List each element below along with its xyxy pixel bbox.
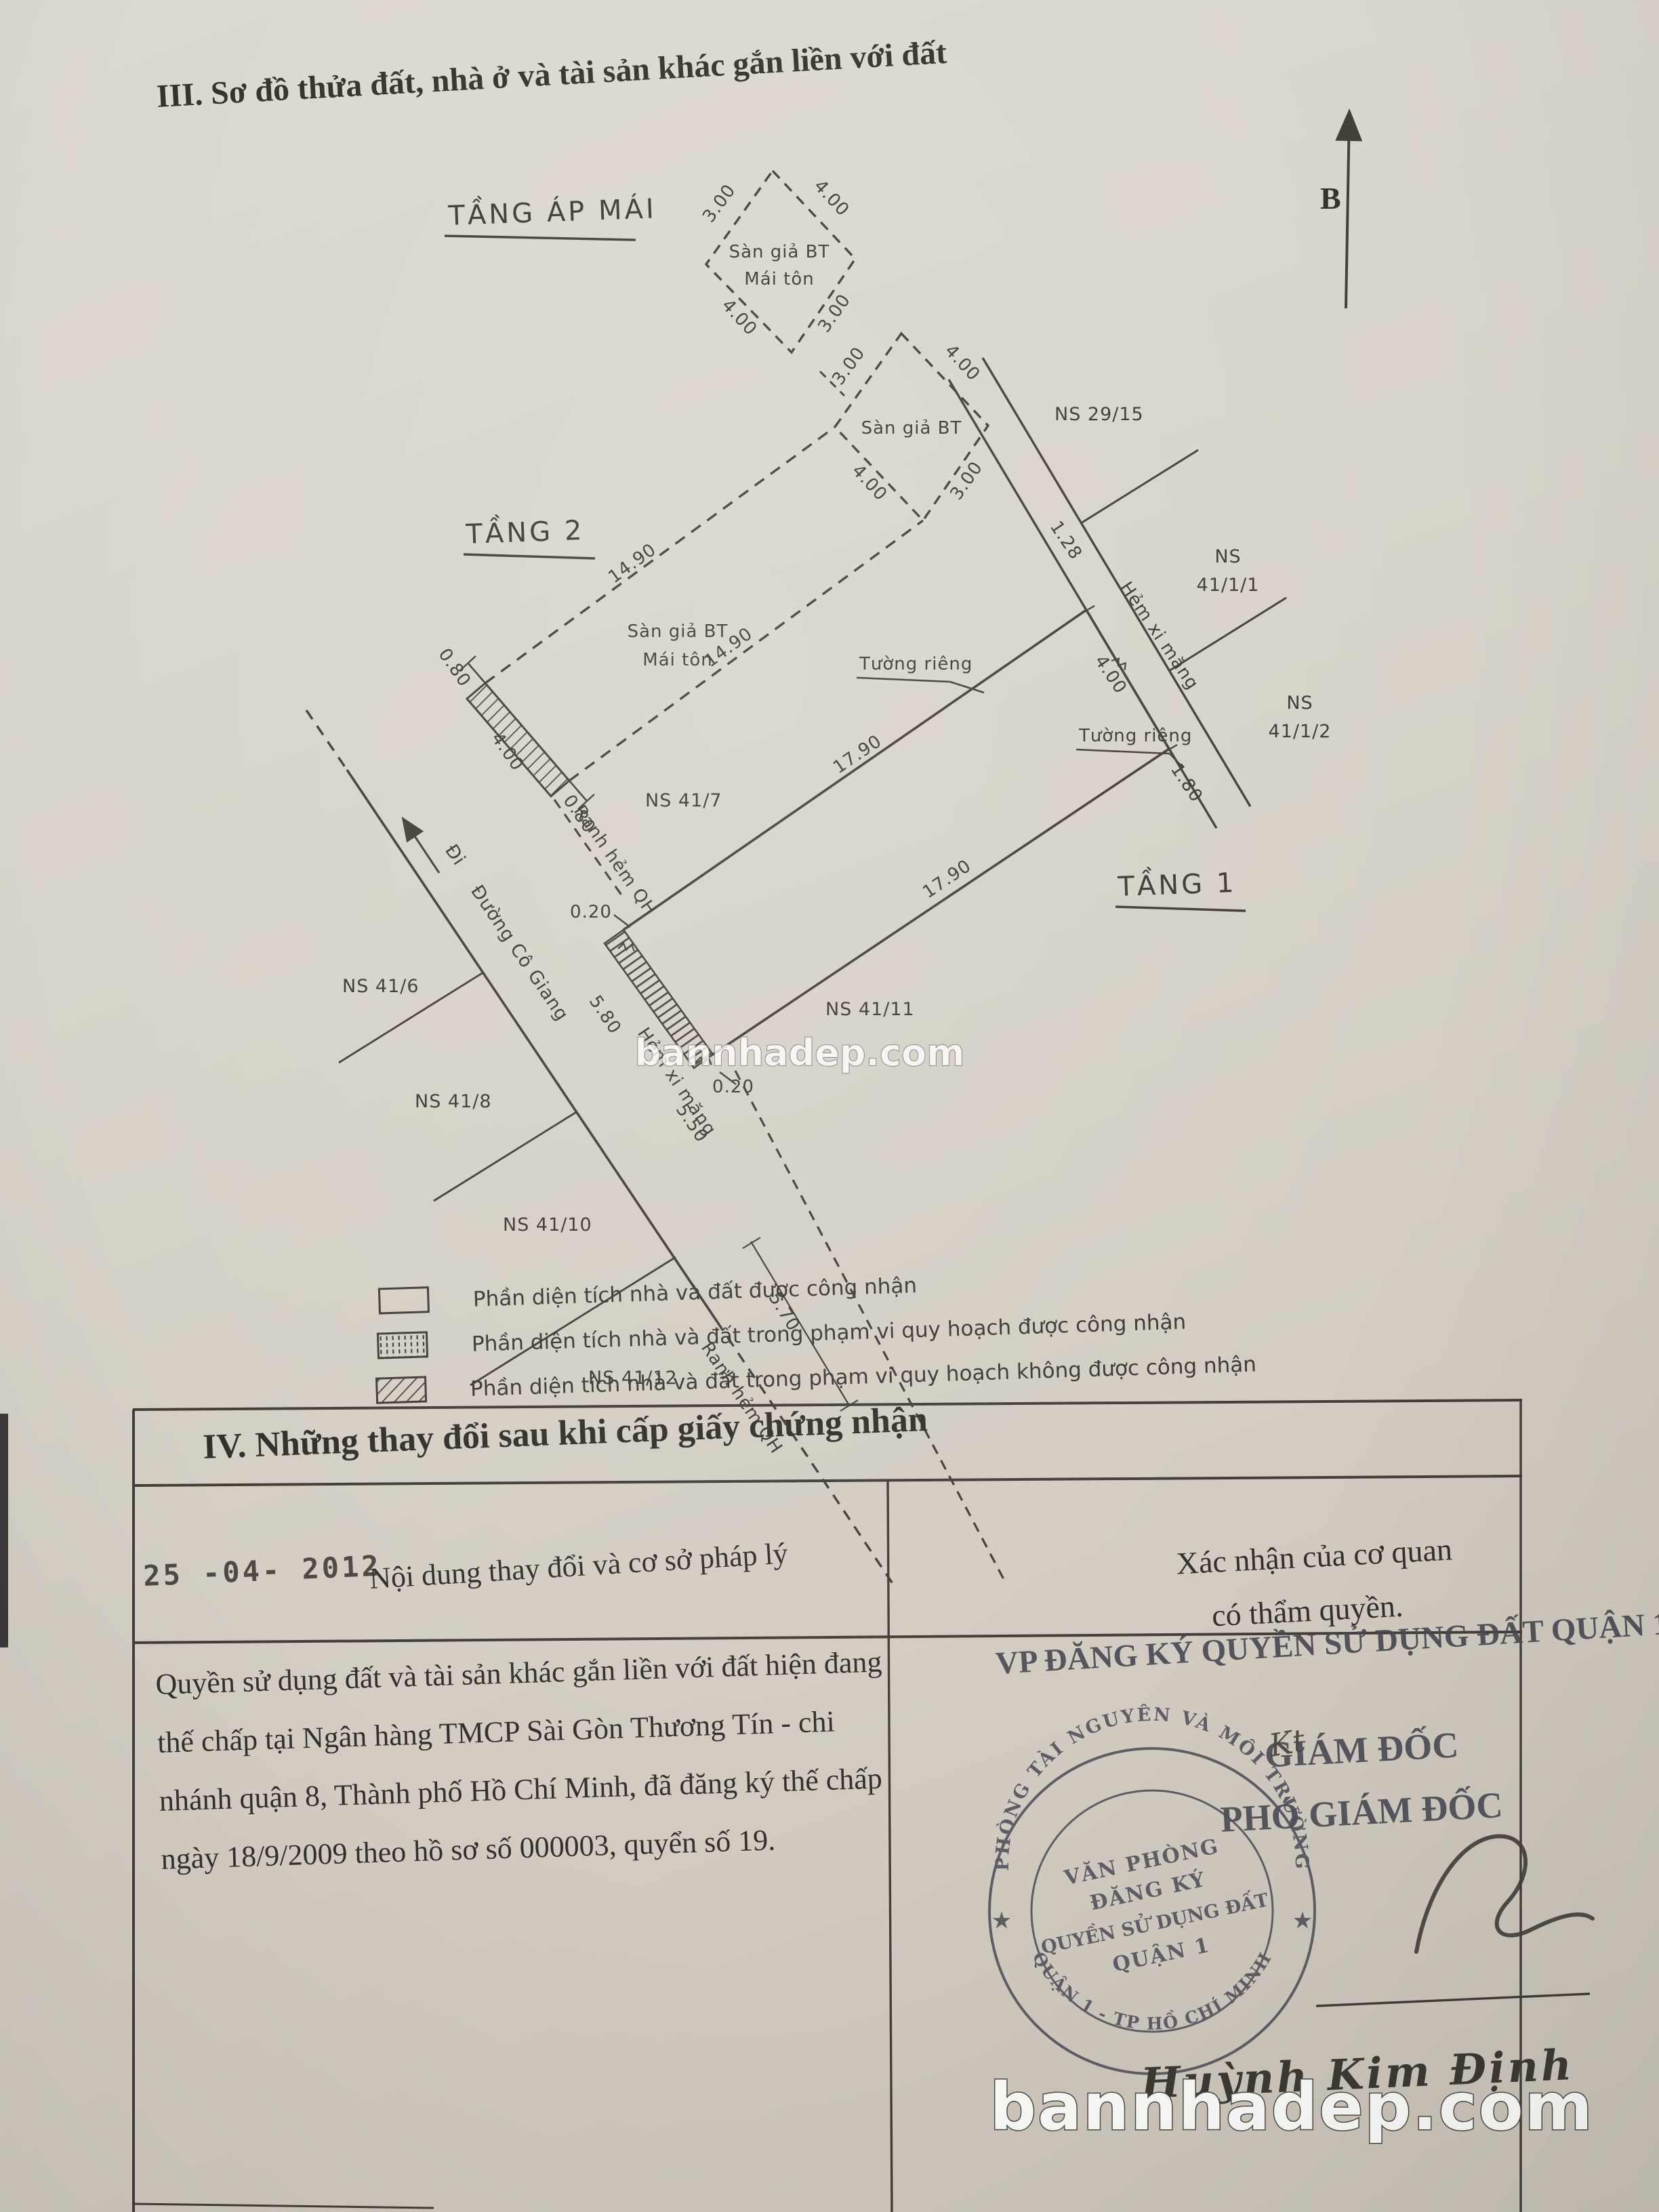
wall2-label: Tường riêng bbox=[1078, 726, 1192, 746]
alley-ne-dim1: 1.28 bbox=[1046, 517, 1086, 563]
page-canvas: III. Sơ đồ thửa đất, nhà ở và tài sản kh… bbox=[0, 0, 1659, 2212]
floor2-front-top: 0.80 bbox=[434, 644, 475, 691]
parcel-ns41-6: NS 41/6 bbox=[342, 976, 419, 997]
floor2-side-upper bbox=[485, 427, 835, 683]
tick bbox=[614, 915, 630, 927]
floor2-title-underline bbox=[464, 554, 595, 558]
floor1-group: TẦNG 1 17.90 17.90 0.20 0.20 Tường riêng… bbox=[570, 610, 1246, 1097]
seal-center-text: VĂN PHÒNG ĐĂNG KÝ QUYỀN SỬ DỤNG ĐẤT QUẬN… bbox=[1026, 1826, 1277, 1990]
roof2-dim-tl: 3.00 bbox=[828, 343, 869, 389]
legend: Phần diện tích nhà và đất được công nhận… bbox=[373, 1261, 1256, 1404]
road-direction-arrow bbox=[404, 820, 439, 873]
mortgage-paragraph: Quyền sử dụng đất và tài sản khác gắn li… bbox=[155, 1645, 888, 1876]
road-name-label: Đường Cô Giang bbox=[466, 882, 573, 1025]
seal-star-right: ★ bbox=[1294, 1909, 1312, 1933]
tick bbox=[743, 1237, 760, 1248]
table-border-mid1 bbox=[133, 1476, 1522, 1486]
roof2-room-label: Sàn giả BT bbox=[861, 418, 962, 438]
parcel-ns29-15: NS 29/15 bbox=[1054, 404, 1144, 425]
approval-block: VP ĐĂNG KÝ QUYỀN SỬ DỤNG ĐẤT QUẬN 1 Kt G… bbox=[989, 1605, 1659, 2108]
parcel-ns41-1-1a: NS bbox=[1214, 546, 1241, 567]
wall1-label: Tường riêng bbox=[859, 654, 972, 674]
wall2-underline bbox=[1076, 750, 1170, 754]
wall1-underline bbox=[857, 678, 950, 682]
section4-col-right-1: Xác nhận của cơ quan bbox=[1175, 1532, 1453, 1580]
legend-swatch-planning-not-recognised bbox=[377, 1377, 426, 1403]
alley-ne-group: NS 29/15 NS 41/1/1 NS 41/1/2 1.28 Hẻm xi… bbox=[949, 358, 1331, 828]
north-arrow: B bbox=[1320, 114, 1349, 308]
section3-title: III. Sơ đồ thửa đất, nhà ở và tài sản kh… bbox=[156, 35, 948, 115]
legend-label-3: Phần diện tích nhà và đất trong phạm vi … bbox=[470, 1352, 1257, 1401]
floor2-len1: 14.90 bbox=[605, 539, 660, 588]
attic-title: TẦNG ÁP MÁI bbox=[447, 189, 657, 232]
floor2-front-hatch-strip bbox=[467, 683, 569, 796]
road-go-label: Đi bbox=[441, 841, 470, 870]
signature-scribble bbox=[1416, 1837, 1593, 1952]
north-label: B bbox=[1320, 181, 1341, 216]
roof2-dim-tr: 4.00 bbox=[941, 341, 984, 386]
legend-swatch-recognised bbox=[379, 1288, 428, 1313]
alley-sw-dim1: 5.80 bbox=[585, 991, 625, 1038]
certificate-page-photo: III. Sơ đồ thửa đất, nhà ở và tài sản kh… bbox=[0, 0, 1659, 2212]
mortgage-line-2: thế chấp tại Ngân hàng TMCP Sài Gòn Thươ… bbox=[157, 1705, 835, 1759]
mortgage-line-4: ngày 18/9/2009 theo hồ sơ số 000003, quy… bbox=[161, 1823, 776, 1875]
roof2-dim-bl: 4.00 bbox=[848, 461, 891, 506]
tick bbox=[1078, 606, 1094, 615]
watermark-bottom: bannhadep.com bbox=[989, 2069, 1593, 2145]
attic-room-label1: Sàn giả BT bbox=[729, 242, 830, 262]
mortgage-line-1: Quyền sử dụng đất và tài sản khác gắn li… bbox=[155, 1645, 882, 1701]
floor1-title-underline bbox=[1115, 907, 1246, 911]
parcel-branch-c bbox=[470, 1257, 676, 1385]
parcel-ns41-1-1b: 41/1/1 bbox=[1197, 575, 1260, 596]
parcel-ns41-10: NS 41/10 bbox=[503, 1214, 592, 1235]
alley-sw-group: Ranh hẻm QH NS 41/7 NS 41/11 5.80 Hẻm xi… bbox=[554, 790, 1004, 1580]
floor1-title: TẦNG 1 bbox=[1117, 863, 1237, 903]
roof2-group: Sàn giả BT 3.00 4.00 4.00 3.00 bbox=[820, 333, 988, 520]
official-seal: PHÒNG TÀI NGUYÊN VÀ MÔI TRƯỜNG QUẬN 1 - … bbox=[989, 1703, 1315, 2074]
attic-floor-group: TẦNG ÁP MÁI Sàn giả BT Mái tôn 3.00 4.00… bbox=[445, 171, 855, 352]
attic-room-label2: Mái tôn bbox=[744, 269, 814, 289]
signature-underline bbox=[1316, 1994, 1590, 2006]
attic-dim-br: 3.00 bbox=[814, 290, 855, 336]
section4-col-left: Nội dung thay đổi và cơ sở pháp lý bbox=[369, 1536, 789, 1595]
parcel-ns41-11: NS 41/11 bbox=[825, 999, 915, 1020]
watermark-mid: bannhadep.com bbox=[635, 1031, 965, 1074]
parcel-ns41-7: NS 41/7 bbox=[645, 790, 722, 811]
floor1-len2: 17.90 bbox=[919, 856, 975, 903]
floor1-side-lower bbox=[713, 749, 1169, 1054]
legend-swatch-planning-recognised bbox=[377, 1332, 427, 1358]
floor2-group: TẦNG 2 14.90 14.90 Sàn giả BT Mái tôn 0.… bbox=[434, 427, 923, 837]
alley-ne-name: Hẻm xi măng bbox=[1115, 578, 1202, 693]
floor2-room-label1: Sàn giả BT bbox=[628, 621, 729, 642]
floor2-title: TẦNG 2 bbox=[465, 511, 586, 550]
parcel-ns41-1-2a: NS bbox=[1286, 693, 1313, 714]
attic-dim-bl: 4.00 bbox=[718, 295, 761, 340]
alley-ne-line-sw bbox=[949, 380, 1216, 828]
floor1-setback1: 0.20 bbox=[570, 902, 612, 922]
mortgage-line-3: nhánh quận 8, Thành phố Hồ Chí Minh, đã … bbox=[159, 1761, 882, 1817]
table-divider bbox=[888, 1481, 892, 2212]
seal-star-left: ★ bbox=[993, 1909, 1011, 1933]
seal-arc-top-text: PHÒNG TÀI NGUYÊN VÀ MÔI TRƯỜNG bbox=[992, 1703, 1312, 1871]
table-border-bottom-partial bbox=[134, 2204, 434, 2208]
floor2-room-label2: Mái tôn bbox=[642, 650, 712, 670]
attic-dim-tl: 3.00 bbox=[699, 180, 740, 226]
parcel-branch-b bbox=[434, 1111, 577, 1201]
road-dashed-nw bbox=[306, 710, 347, 770]
parcel-branch-1 bbox=[1081, 450, 1198, 523]
legend-label-1: Phần diện tích nhà và đất được công nhận bbox=[472, 1273, 917, 1312]
parcel-ns41-1-2b: 41/1/2 bbox=[1269, 721, 1332, 742]
parcel-ns41-8: NS 41/8 bbox=[415, 1091, 492, 1112]
date-stamp: 25 -04- 2012 bbox=[142, 1549, 382, 1593]
seal-arc-top-textpath: PHÒNG TÀI NGUYÊN VÀ MÔI TRƯỜNG bbox=[992, 1703, 1312, 1871]
page-edge-shadow bbox=[0, 1414, 8, 1647]
north-arrow-line bbox=[1346, 114, 1349, 308]
attic-title-underline bbox=[445, 236, 636, 240]
attic-dim-tr: 4.00 bbox=[810, 176, 853, 221]
roof2-dim-br: 3.00 bbox=[946, 457, 987, 504]
section4-heading: IV. Những thay đổi sau khi cấp giấy chứn… bbox=[202, 1400, 928, 1467]
